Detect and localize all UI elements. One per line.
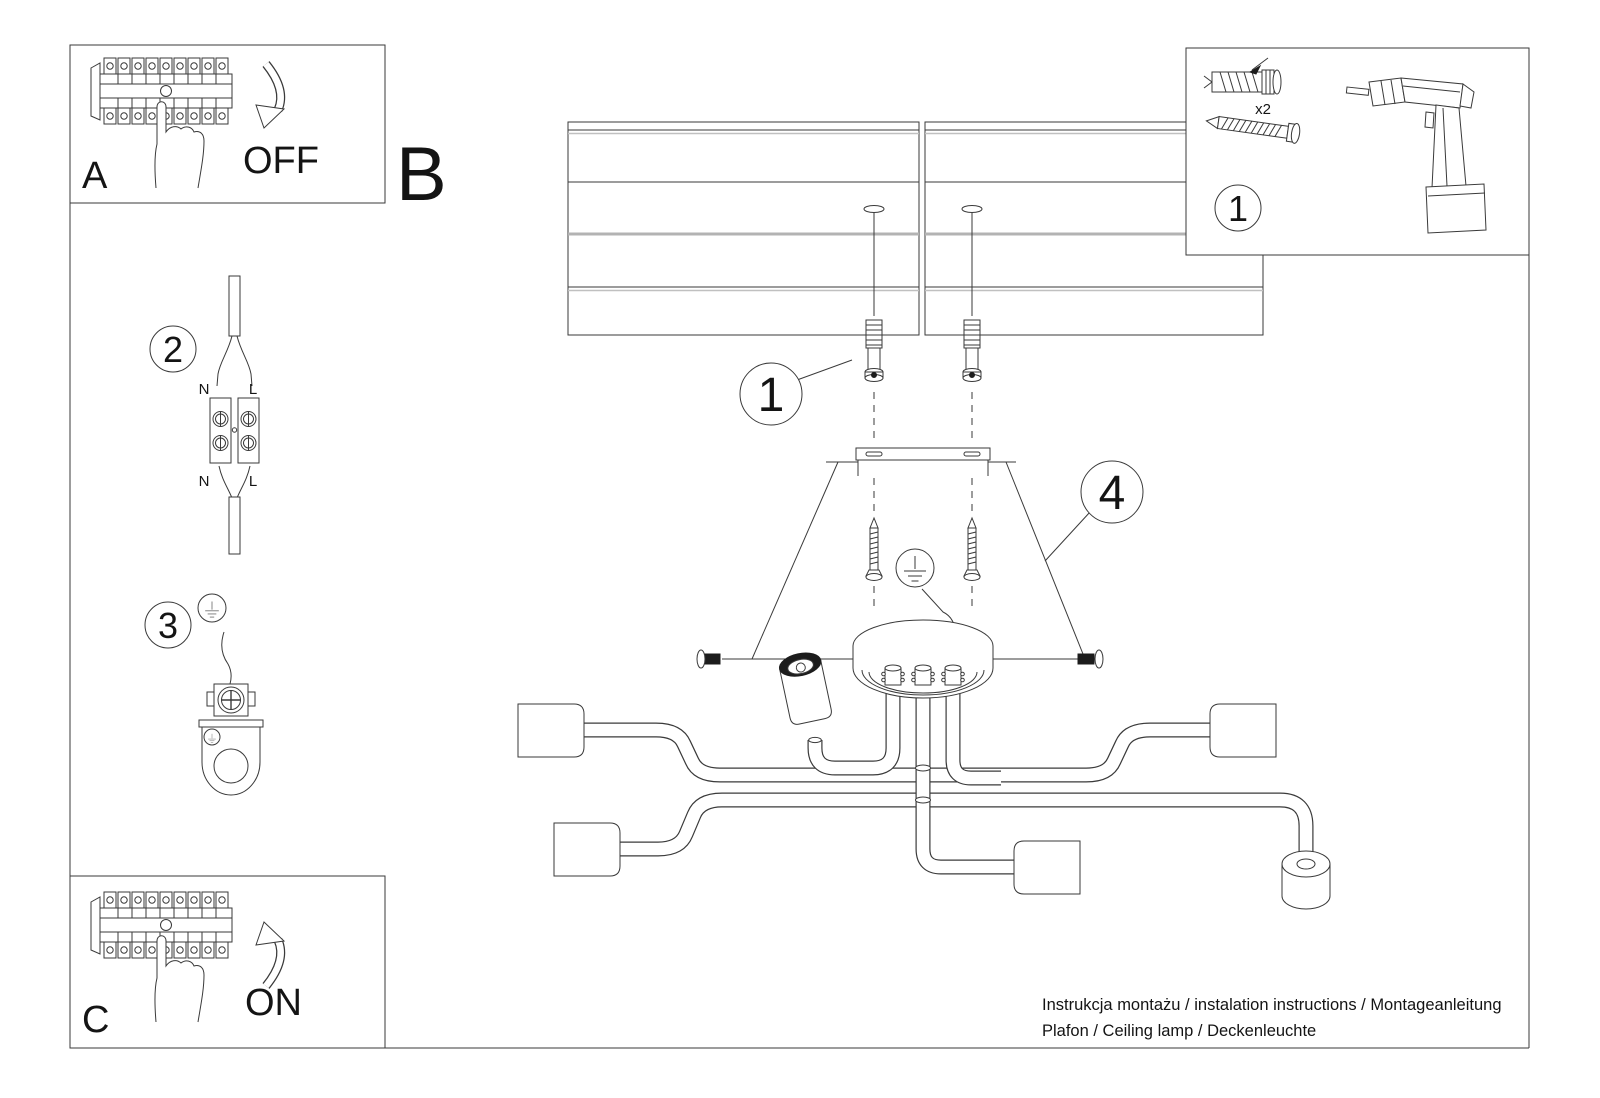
label-l-top: L [249,381,257,398]
step3-grounding: 3 [145,594,263,795]
canopy-collar [912,665,935,685]
step3-number: 3 [158,605,178,646]
tube-seam [916,797,931,803]
instruction-sheet: 1 4 A OFF B C ON 2 N [0,0,1600,1098]
mounting-screw-right [964,518,980,581]
dowel-quantity: x2 [1255,101,1271,118]
off-label: OFF [243,140,319,182]
label-n-bottom: N [199,473,210,490]
lamp-arms [584,672,1306,867]
cable-bottom [229,497,240,554]
socket-exploded [777,649,832,725]
step2-wiring: 2 N L N L [150,276,259,554]
callout-step4: 4 [1045,461,1143,561]
panel-tools: x2 1 [1186,48,1529,255]
callout-step4-number: 4 [1099,467,1126,520]
ground-terminal [207,684,255,716]
panel-a-label: A [82,155,108,197]
label-n-top: N [199,381,210,398]
panel-c: C ON [70,876,385,1048]
panel-a: A OFF [70,45,385,203]
step2-number: 2 [163,329,183,370]
callout-step1-number: 1 [758,369,785,422]
section-b-label: B [396,132,447,217]
footer-line2: Plafon / Ceiling lamp / Deckenleuchte [1042,1022,1316,1040]
ceiling-planks [568,122,1263,335]
canopy-collar [882,665,905,685]
drill-hole-right [962,206,982,213]
label-l-bottom: L [249,473,257,490]
wall-plug-left [865,320,883,382]
mounting-screw-left [866,518,882,581]
cable-top [229,276,240,336]
terminal-block [210,398,259,463]
canopy-collar [942,665,965,685]
callout-step1: 1 [740,360,852,425]
footer-line1: Instrukcja montażu / instalation instruc… [1042,996,1502,1014]
drill-hole-left [864,206,884,213]
socket-upper-left [518,704,584,757]
socket-lower-left [554,823,620,876]
socket-bottom-center [1014,841,1080,894]
canopy [853,620,993,698]
socket-far-right [1282,851,1330,909]
wall-plug-right [963,320,981,382]
canopy-side-screw-left [697,650,720,668]
on-label: ON [245,982,302,1024]
diagram-canvas: 1 4 A OFF B C ON 2 N [0,0,1600,1098]
tools-step-number: 1 [1228,188,1248,229]
ground-bracket-body [199,720,263,795]
panel-c-label: C [82,999,109,1041]
mounting-bracket [856,448,990,476]
tube-seam [916,765,931,771]
canopy-side-screw-right [1078,650,1103,668]
socket-upper-right [1210,704,1276,757]
